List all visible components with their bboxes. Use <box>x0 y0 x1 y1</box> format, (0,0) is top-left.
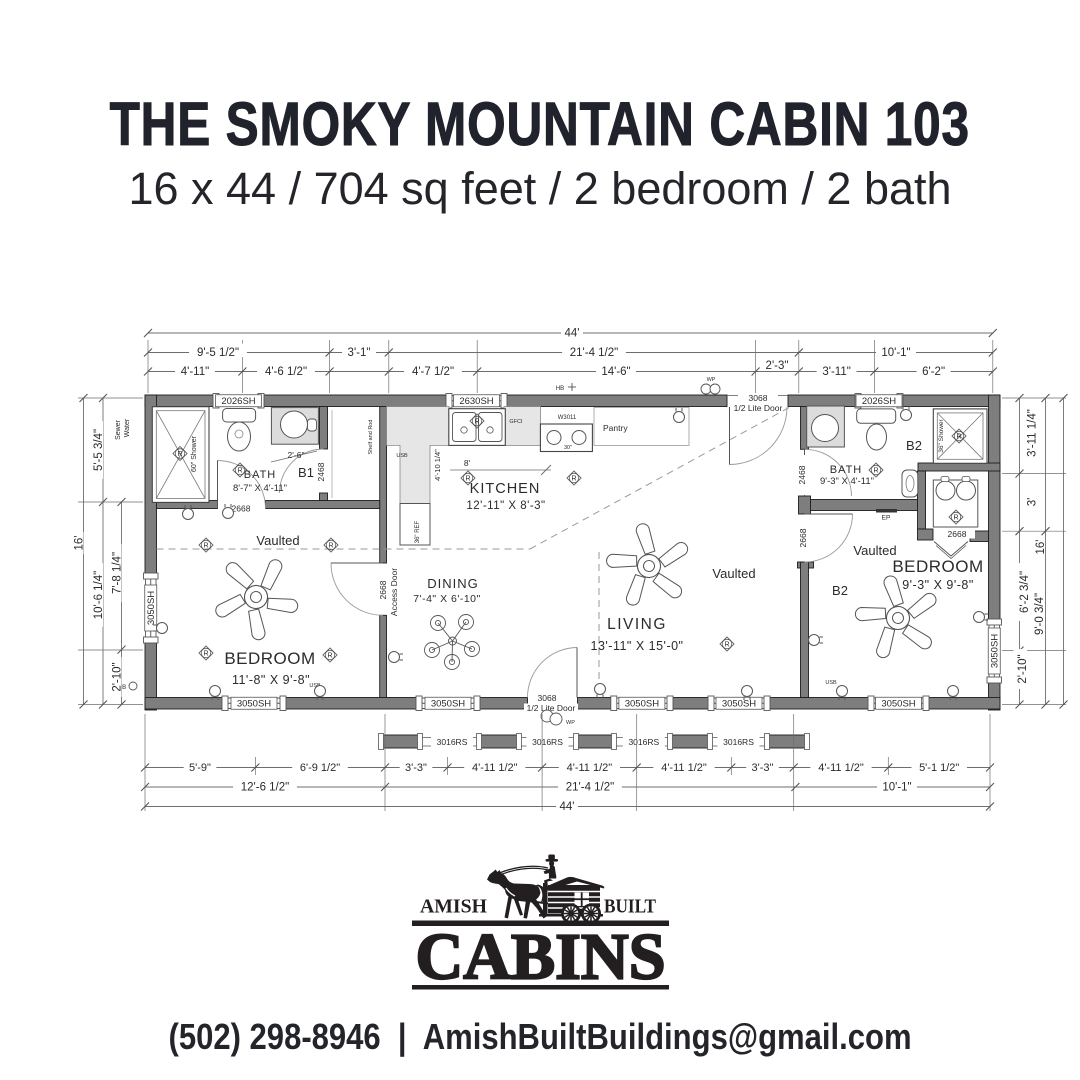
svg-text:AMISH: AMISH <box>420 897 487 918</box>
svg-text:BUILT: BUILT <box>604 897 656 918</box>
svg-text:CABINS: CABINS <box>416 921 666 994</box>
